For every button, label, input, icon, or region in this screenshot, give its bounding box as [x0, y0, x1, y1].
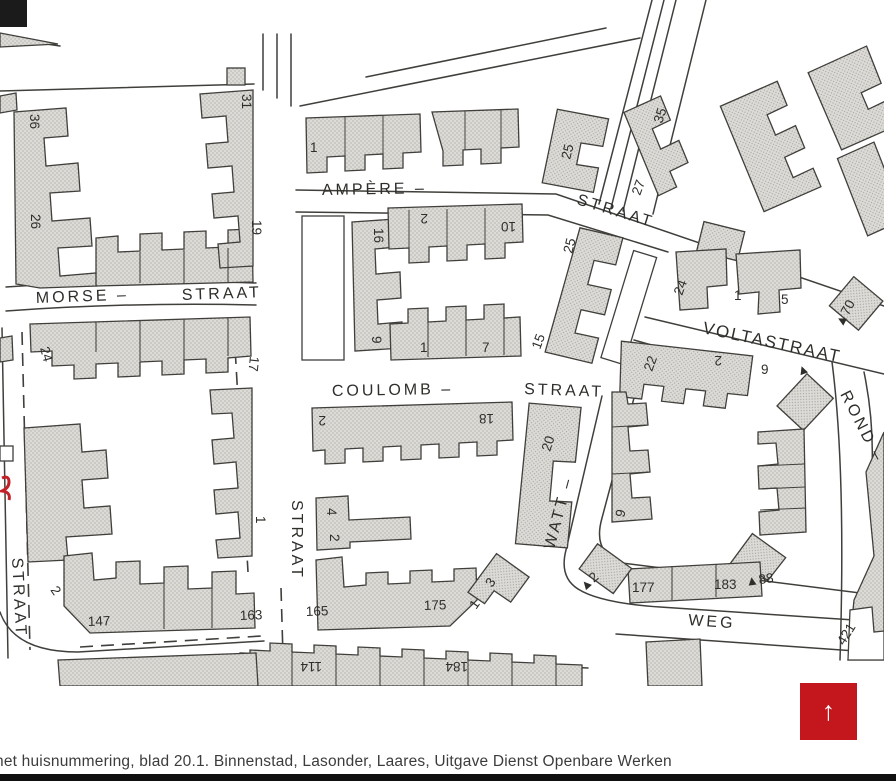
street-label: COULOMB – — [332, 381, 454, 400]
scroll-to-top-button[interactable]: ↑ — [800, 683, 857, 740]
building — [316, 496, 411, 550]
corner-square — [0, 0, 27, 27]
building — [612, 392, 652, 522]
bottom-divider-bar — [0, 774, 896, 781]
arrow-up-icon: ↑ — [822, 696, 836, 726]
building — [777, 374, 833, 431]
building — [432, 109, 519, 166]
house-number: 175 — [424, 597, 447, 613]
map-image: AMPÈRE – STRAAT MORSE – STRAAT COULOMB –… — [0, 0, 884, 686]
house-number: 31 — [239, 94, 254, 109]
building — [200, 90, 253, 268]
building — [390, 304, 521, 360]
house-number: 5 — [781, 292, 789, 307]
building — [14, 108, 97, 288]
map-scan: AMPÈRE – STRAAT MORSE – STRAAT COULOMB –… — [0, 0, 884, 686]
building — [836, 141, 884, 236]
house-number: 165 — [306, 603, 329, 619]
house-number: 2 — [48, 583, 65, 598]
building — [24, 424, 112, 562]
house-number: 2 — [327, 534, 342, 542]
building — [0, 93, 17, 113]
house-number: 1 — [420, 340, 428, 355]
building — [0, 446, 13, 461]
house-number: 26 — [28, 214, 43, 229]
building — [316, 557, 477, 630]
house-number: ▲88 — [744, 570, 774, 589]
building — [806, 46, 884, 152]
house-number: 10 — [501, 219, 516, 234]
house-number: 183 — [714, 577, 737, 592]
house-number: 1 — [253, 516, 268, 524]
house-number: 36 — [27, 114, 42, 129]
house-number: 18 — [479, 411, 494, 426]
house-number: 27 — [629, 178, 648, 197]
building — [736, 250, 801, 314]
house-number: 2 — [318, 413, 326, 428]
house-number: 1 — [310, 140, 318, 155]
building — [306, 114, 421, 173]
house-number: 17 — [245, 356, 261, 373]
building — [758, 429, 806, 535]
house-number: 15 — [529, 332, 548, 351]
house-number: 1 — [734, 288, 742, 303]
building — [58, 653, 258, 686]
street-label: STRAAT — [575, 192, 656, 232]
street-label: STRAAT — [8, 557, 29, 638]
building — [676, 249, 727, 310]
house-number: 9 — [369, 336, 384, 344]
street-label: ROND – — [836, 388, 884, 466]
house-number: 163 — [240, 607, 263, 623]
map-caption: het huisnummering, blad 20.1. Binnenstad… — [0, 753, 896, 771]
house-number: 184 — [445, 659, 468, 674]
house-number: 4 — [324, 508, 339, 516]
street-label: STRAAT — [288, 500, 305, 580]
building — [0, 336, 13, 362]
building — [302, 216, 344, 360]
house-number: 16 — [371, 228, 386, 243]
building — [0, 33, 58, 47]
street-label: MORSE – — [36, 287, 130, 307]
house-number: 2 — [714, 353, 722, 368]
building — [646, 639, 702, 686]
building — [539, 106, 611, 195]
house-number: 114 — [300, 659, 322, 674]
house-number: 147 — [88, 613, 111, 629]
building — [719, 80, 822, 214]
house-number: 7 — [482, 340, 490, 355]
street-label: WEG — [688, 612, 736, 632]
house-number: 9 — [761, 362, 769, 377]
street-label: STRAAT — [524, 381, 604, 401]
street-label: AMPÈRE – — [322, 178, 427, 199]
building — [227, 68, 245, 85]
house-number: 2 — [420, 211, 428, 226]
house-number: 19 — [249, 220, 264, 235]
building — [250, 643, 582, 686]
building — [210, 388, 252, 558]
house-number: 177 — [632, 580, 655, 595]
street-label: STRAAT — [182, 284, 262, 304]
